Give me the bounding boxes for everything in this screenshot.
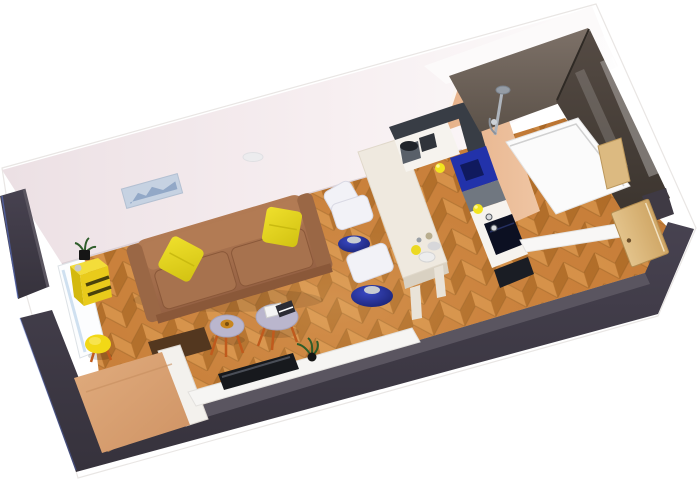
pendant-light-2 xyxy=(473,204,483,214)
floorplan-3d-svg: 3D isometric cutaway render of a studio … xyxy=(0,0,700,500)
apartment-render: 3D isometric cutaway render of a studio … xyxy=(0,0,700,500)
pendant-light-1 xyxy=(435,163,445,173)
yellow-cushion-right xyxy=(261,206,303,248)
hob-knob-1 xyxy=(486,214,492,220)
hob-knob-2 xyxy=(491,225,497,231)
ceiling-light xyxy=(243,153,263,162)
